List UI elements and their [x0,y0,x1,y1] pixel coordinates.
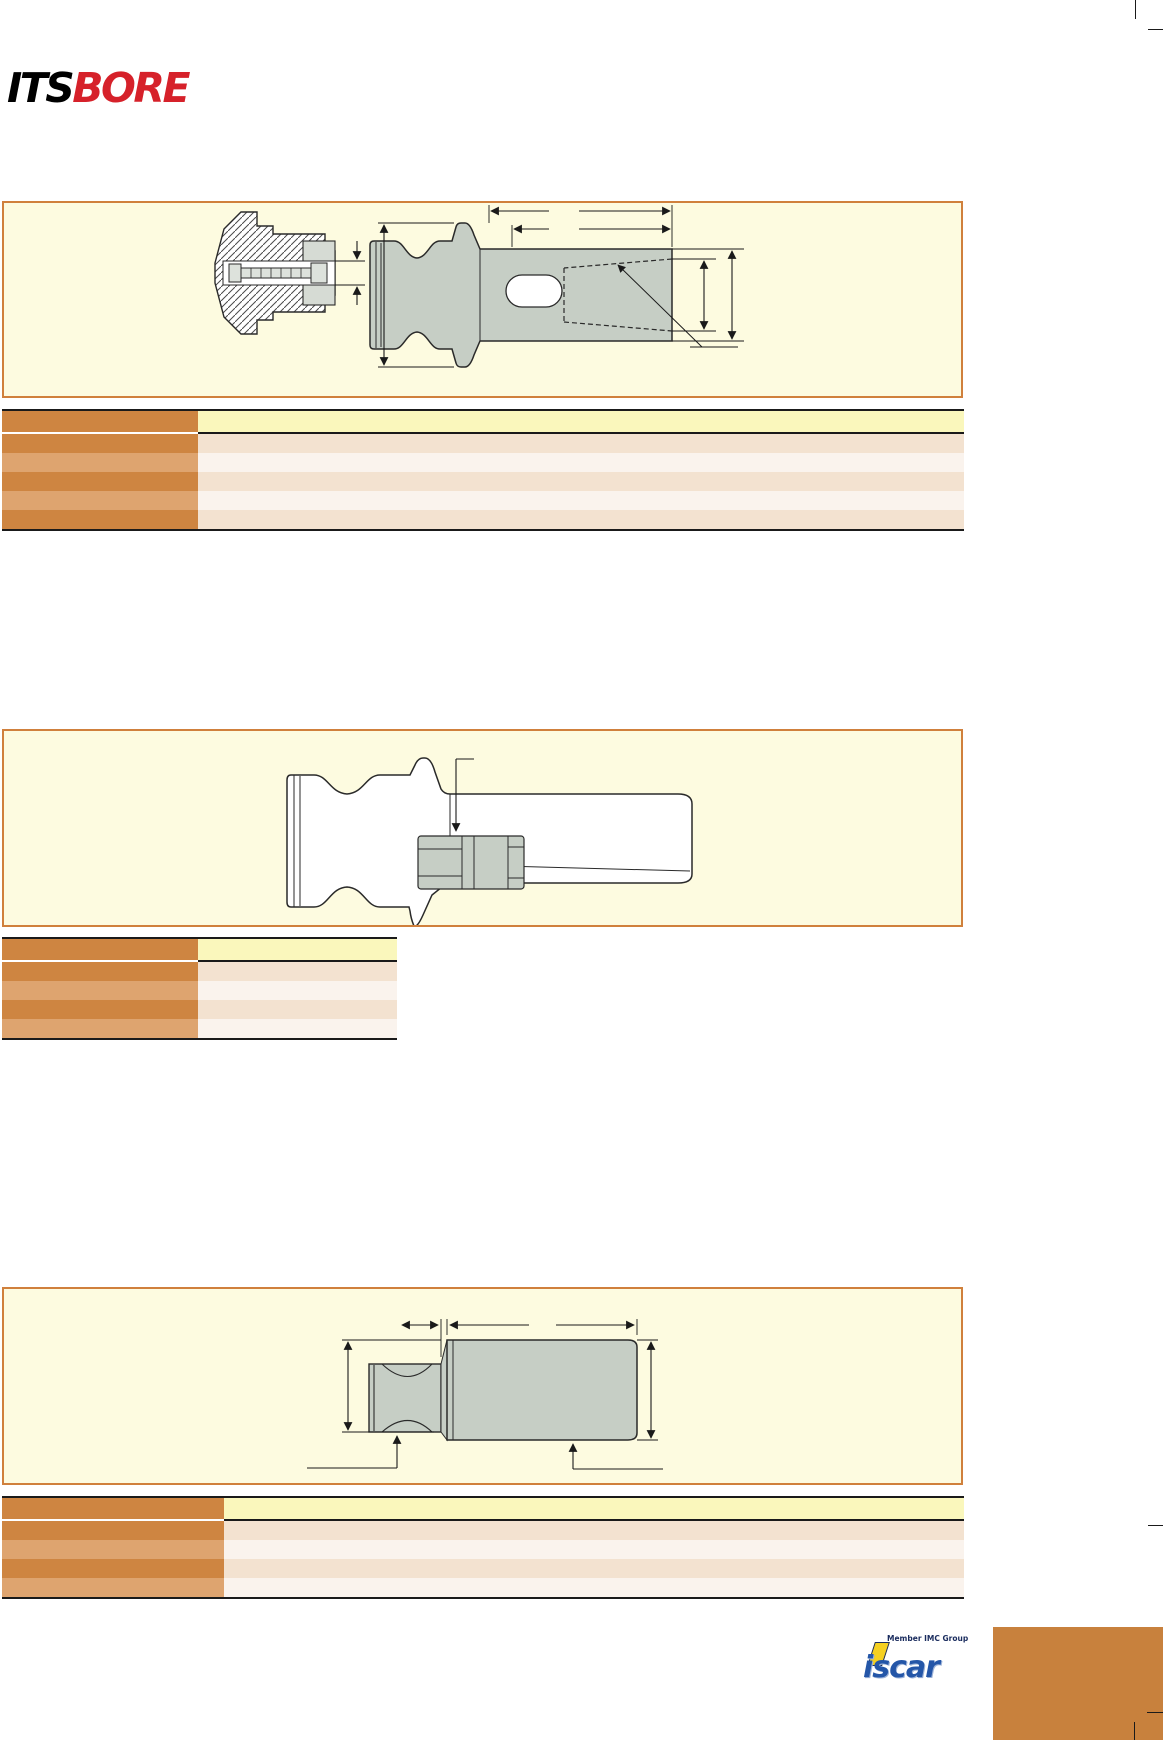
crop-mark-bottom-horizontal [1147,1712,1163,1713]
table-row [2,1578,964,1597]
tapered-bore-drawing [4,203,961,396]
iscar-member-text: Member IMC Group [887,1634,968,1643]
diagram-panel-tapered-bore [2,201,963,398]
table-row [2,1540,964,1559]
table-header-row [2,411,964,434]
table-row [2,1019,397,1038]
table-row [2,962,397,981]
diagram-panel-blank-bar [2,1287,963,1485]
tool-holder-drawing [370,205,744,367]
spec-table-1 [2,409,964,531]
spec-table-3 [2,1496,964,1599]
spindle-cross-section [215,212,365,334]
table-row [2,472,964,491]
crop-mark-mid-horizontal [1148,1525,1163,1526]
table-row [2,510,964,529]
diagram-panel-collet-holder [2,729,963,927]
table-row [2,1521,964,1540]
table-header-row [2,939,397,962]
page-corner-block [993,1627,1163,1740]
holder-silhouette [287,758,692,925]
table-row [2,491,964,510]
table-header-row [2,1498,964,1521]
spec-table-2 [2,937,397,1040]
blank-bar-drawing [4,1289,961,1483]
catalog-page: ITSBORE [0,0,1163,1740]
itsbore-logo-bore: BORE [72,64,188,112]
table-row [2,434,964,453]
itsbore-logo-its: ITS [7,64,72,112]
iscar-logo: Member IMC Group iscar [861,1634,973,1688]
bar-silhouette [307,1319,663,1469]
table-row [2,1559,964,1578]
crop-mark-top-horizontal [1148,29,1163,30]
iscar-wordmark: iscar [863,1650,939,1685]
table-row [2,1000,397,1019]
crop-mark-top-vertical [1135,0,1136,19]
itsbore-logo: ITSBORE [7,66,188,110]
table-row [2,453,964,472]
crop-mark-bottom-vertical [1134,1722,1135,1740]
collet-holder-drawing [4,731,961,925]
table-row [2,981,397,1000]
